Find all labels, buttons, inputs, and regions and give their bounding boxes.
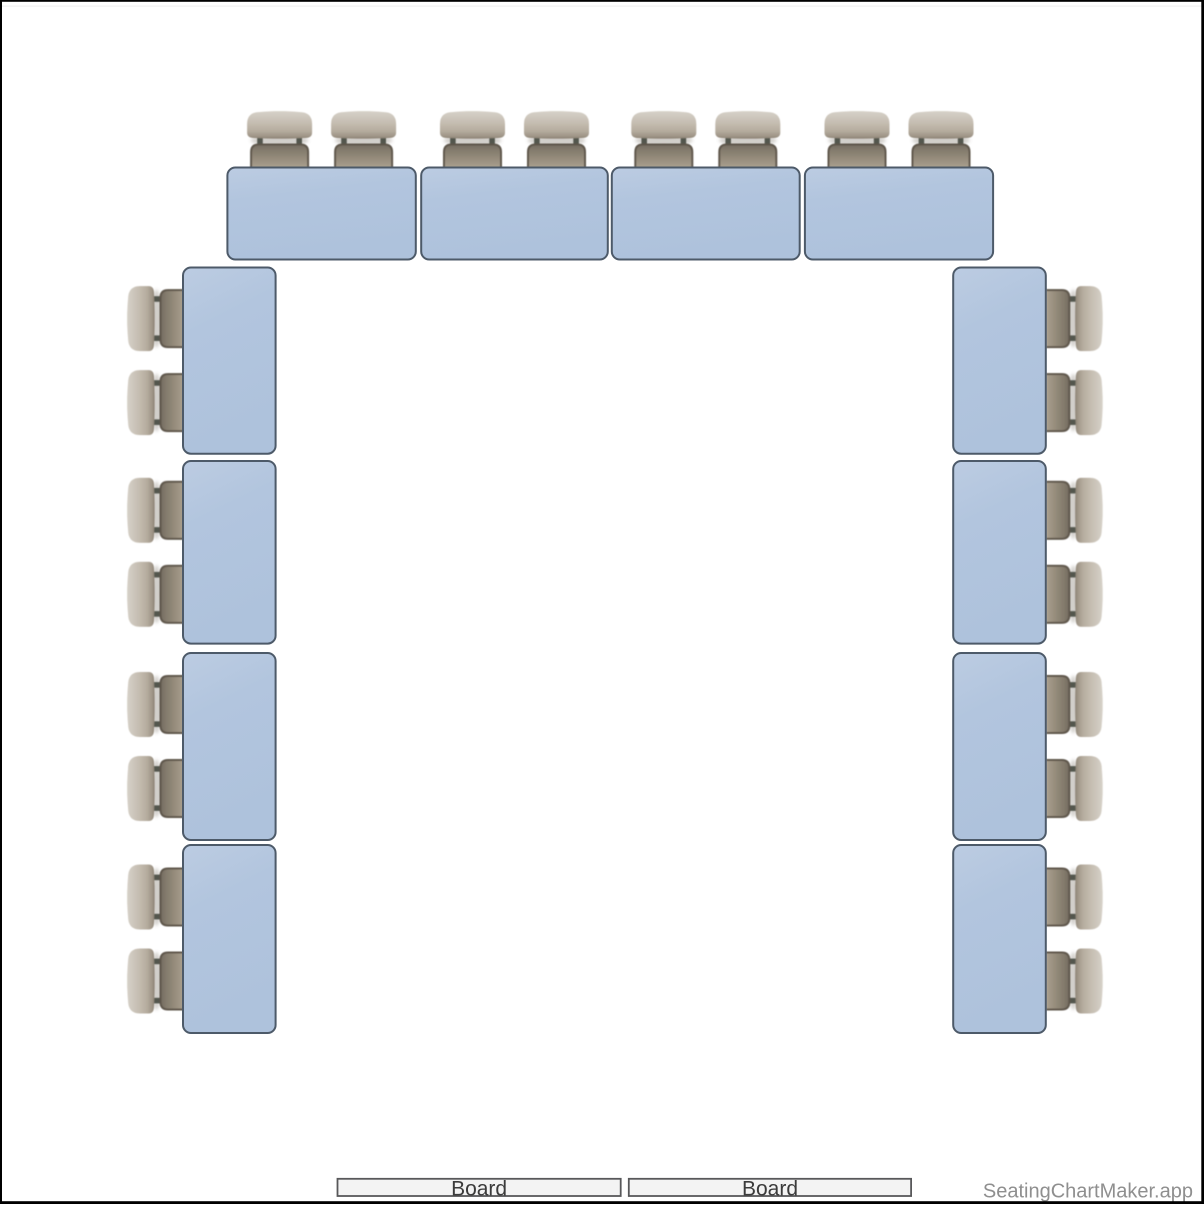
svg-text:Board: Board — [742, 1177, 798, 1200]
svg-text:SeatingChartMaker.app: SeatingChartMaker.app — [983, 1180, 1193, 1202]
svg-text:Board: Board — [451, 1177, 507, 1200]
